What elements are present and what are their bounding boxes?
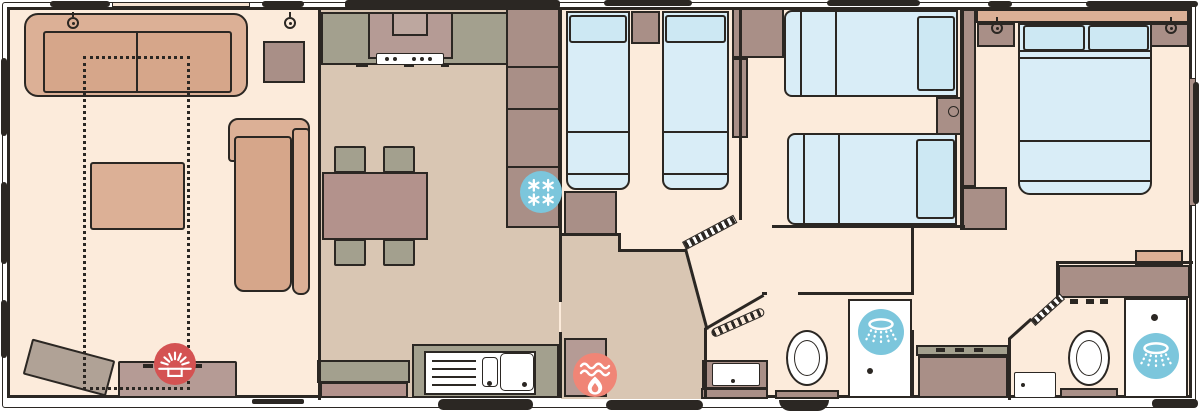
single-bed-4-throw — [803, 133, 840, 225]
window-left-c — [1, 300, 7, 358]
window-top-lounge-b — [262, 1, 304, 7]
window-top-master-b — [1086, 1, 1198, 7]
bathroom-vanity-drawer — [701, 388, 768, 399]
double-bed-band — [1018, 50, 1152, 59]
single-bed-4-pillow — [916, 139, 955, 219]
extractor — [392, 12, 428, 36]
single-bed-3-throw — [800, 10, 837, 97]
dining-chair — [383, 239, 415, 266]
wall-kitchen-bedroom1 — [559, 8, 562, 302]
single-bed-1-throw — [566, 131, 630, 175]
single-bed-2-throw — [662, 131, 729, 175]
dresser-handle — [974, 348, 983, 352]
step-lounge — [252, 399, 304, 404]
entrance-step-kitchen — [438, 399, 533, 410]
window-top-bedroom2 — [827, 0, 920, 6]
wall-light — [283, 14, 297, 28]
sink-drain — [522, 382, 527, 387]
window-left-a — [1, 58, 7, 136]
ensuite-toilet-seat — [1076, 340, 1102, 376]
single-bed-3-pillow — [917, 16, 955, 91]
wall-master-left-lower — [911, 330, 914, 398]
master-dresser — [918, 356, 1008, 398]
dining-chair — [383, 146, 415, 173]
cupboard-shelf — [506, 166, 560, 168]
kitchen-bench — [320, 382, 408, 398]
shower-icon-ensuite — [1133, 333, 1179, 379]
wall-bedroom2-bottom — [772, 225, 965, 228]
dining-table — [322, 172, 428, 240]
drainer-line — [432, 384, 476, 386]
tap — [1070, 299, 1078, 304]
dresser-handle — [936, 348, 945, 352]
bathroom-toilet-base — [775, 390, 839, 399]
wall-bedroom2-master — [961, 8, 964, 226]
kitchen-bench-top — [317, 360, 410, 383]
wall-light — [1164, 19, 1178, 33]
drainer-line — [432, 376, 476, 378]
bedroom2-bedside-cabinet — [936, 97, 962, 135]
wall-kitchen-hall-lower — [559, 332, 562, 398]
cupboard-shelf — [506, 108, 560, 110]
wall-ensuite-left-lower — [1008, 338, 1011, 400]
electric-fire-icon — [154, 343, 196, 385]
ensuite-vanity — [1058, 265, 1190, 298]
basin-drain — [1021, 383, 1025, 387]
ensuite-toilet-base — [1060, 388, 1118, 398]
wall-light — [990, 19, 1004, 33]
dining-chair — [334, 146, 366, 173]
shower-head — [1151, 314, 1158, 321]
dresser-handle — [955, 348, 964, 352]
basin-drain — [731, 379, 735, 383]
bathroom-basin — [712, 363, 760, 386]
bathroom-toilet-seat — [794, 340, 820, 376]
shower-door-handle — [867, 368, 873, 374]
drainer-line — [432, 368, 476, 370]
window-right — [1193, 82, 1199, 204]
window-top-lounge-glass — [112, 2, 250, 7]
entrance-step-hall — [606, 400, 703, 410]
single-bed-1-pillow — [569, 15, 627, 43]
window-top-master-a — [988, 1, 1012, 7]
wall-bedroom1-bottom — [559, 233, 621, 236]
cupboard-shelf — [506, 66, 560, 68]
single-bed-2-pillow — [665, 15, 726, 43]
wall-ensuite-top — [1056, 261, 1193, 264]
wall-bathroom-top — [798, 292, 914, 295]
sink-bowl — [500, 353, 534, 391]
floorplan — [0, 0, 1200, 412]
dining-chair — [334, 239, 366, 266]
worktop-handle — [441, 64, 449, 67]
step-right — [1152, 399, 1198, 408]
lounge-side-table — [263, 41, 305, 83]
drainer-line — [432, 360, 476, 362]
wall-master-left-upper — [911, 226, 914, 294]
bedside-lamp — [948, 106, 959, 117]
master-wardrobe — [960, 187, 1007, 230]
armchair-seat — [234, 136, 292, 292]
sink-drain — [487, 381, 492, 386]
bedroom1-cupboard — [564, 191, 617, 235]
wall-bedroom1-bottom2 — [618, 249, 687, 252]
window-left-b — [1, 182, 7, 264]
window-top-lounge-a — [50, 1, 110, 7]
wall-light — [66, 14, 80, 28]
tap — [1100, 299, 1108, 304]
wall-lounge-kitchen — [318, 8, 321, 400]
double-bed-throw — [1018, 140, 1152, 182]
double-bed-pillow-left — [1023, 25, 1085, 51]
wall-bathroom-left — [704, 328, 707, 398]
bedroom1-bedside-shelf — [631, 11, 660, 44]
wall-bedroom1-bedroom2 — [739, 8, 742, 220]
master-headboard-shelf — [976, 9, 1189, 23]
tap — [1086, 299, 1094, 304]
wall-bathroom-top-stub — [762, 292, 767, 295]
worktop-handle — [404, 64, 414, 67]
roof-panel — [345, 0, 560, 9]
fridge-freezer-icon — [520, 171, 562, 213]
central-heating-icon — [573, 353, 617, 397]
double-bed-pillow-right — [1088, 25, 1149, 51]
worktop-handle — [356, 64, 368, 67]
armchair-arm — [292, 128, 310, 295]
window-top-bedroom1 — [604, 0, 692, 6]
toilet-outlet — [779, 400, 829, 411]
sofa-bed-outline — [83, 56, 190, 390]
shower-icon-bathroom — [858, 309, 904, 355]
